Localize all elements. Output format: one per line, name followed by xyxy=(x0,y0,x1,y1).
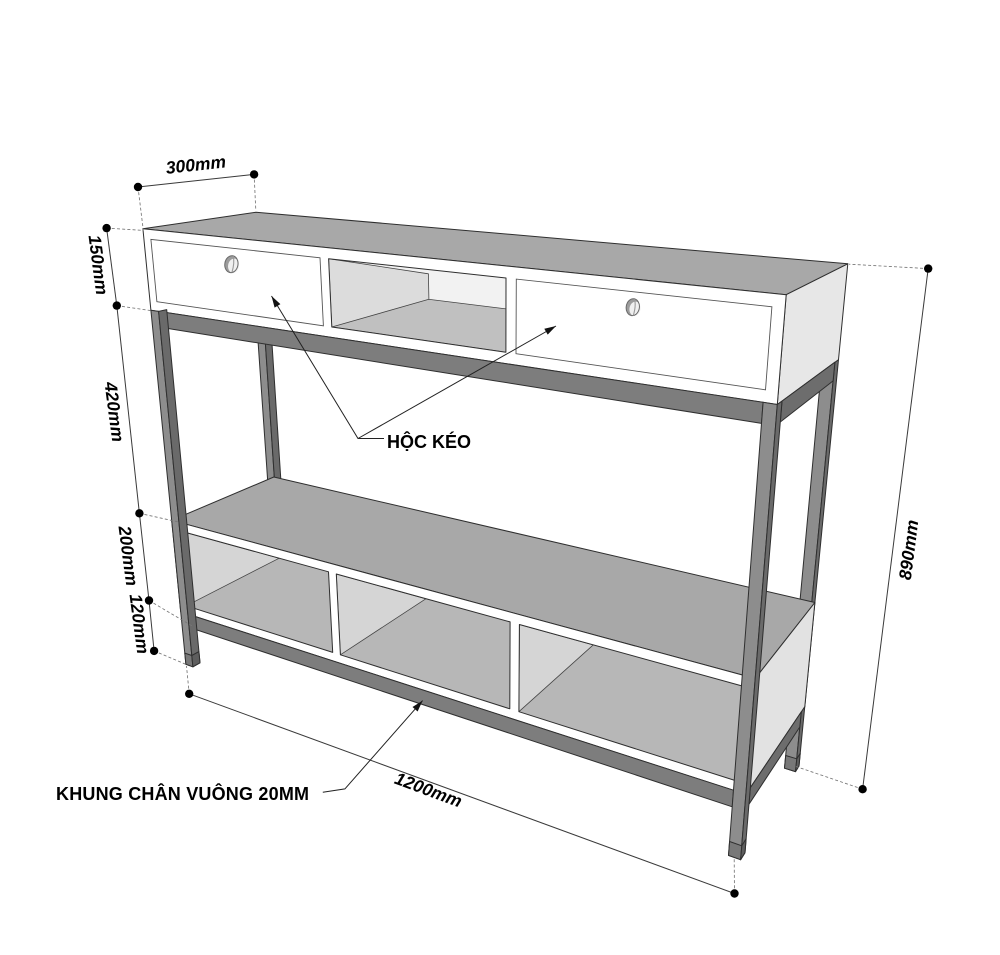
svg-text:KHUNG CHÂN VUÔNG 20MM: KHUNG CHÂN VUÔNG 20MM xyxy=(56,783,309,804)
svg-text:HỘC KÉO: HỘC KÉO xyxy=(387,431,471,452)
